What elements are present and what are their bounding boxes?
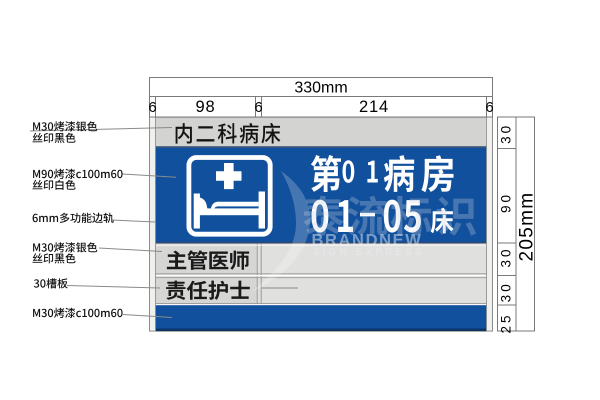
svg-text:6: 6 bbox=[148, 99, 156, 116]
svg-text:6: 6 bbox=[254, 99, 262, 116]
svg-text:25: 25 bbox=[498, 312, 513, 333]
svg-text:205mm: 205mm bbox=[517, 192, 538, 262]
svg-text:330mm: 330mm bbox=[294, 80, 347, 97]
svg-text:214: 214 bbox=[359, 98, 389, 116]
svg-text:30: 30 bbox=[498, 246, 513, 267]
svg-text:30: 30 bbox=[498, 123, 513, 144]
svg-text:6: 6 bbox=[485, 99, 493, 116]
svg-text:98: 98 bbox=[196, 98, 216, 116]
svg-text:SIGN EXPRESS: SIGN EXPRESS bbox=[313, 247, 425, 258]
svg-text:90: 90 bbox=[498, 192, 513, 213]
svg-text:30: 30 bbox=[498, 281, 513, 302]
